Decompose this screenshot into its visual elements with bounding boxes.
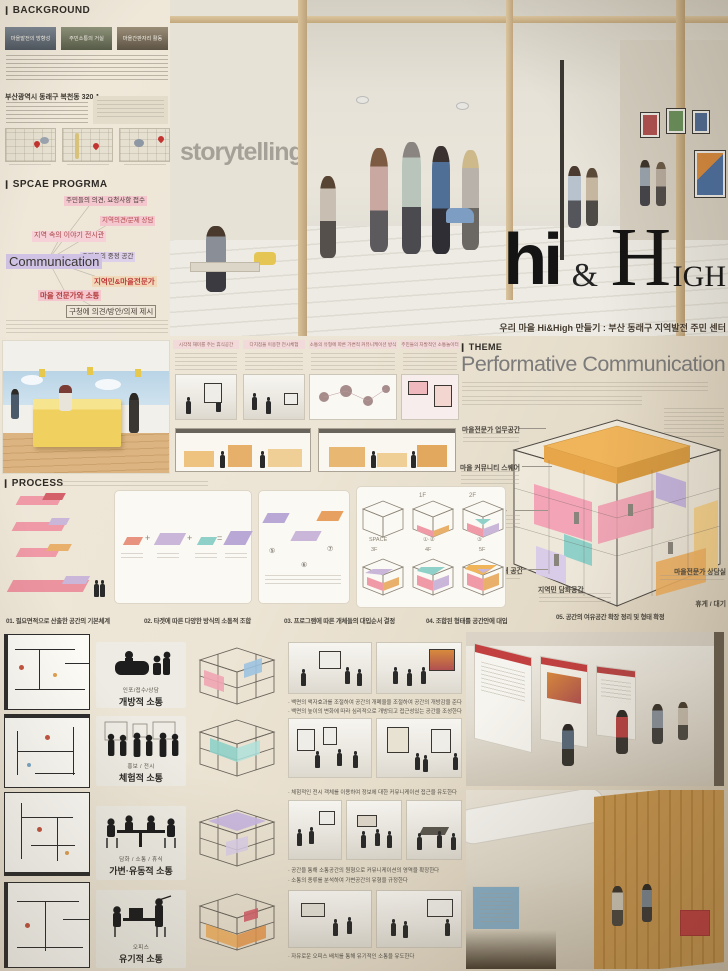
cube-grid-label: 3F <box>371 547 377 553</box>
person <box>568 166 581 228</box>
floor-plan-1 <box>4 634 90 710</box>
process-step-1: 01. 필요면적으로 산출한 공간의 기본체계 <box>6 616 110 625</box>
interior-rendering-photo <box>2 340 170 474</box>
model-figure <box>678 702 688 740</box>
cube-grid-label: 5F <box>479 547 485 553</box>
site-paragraph <box>6 102 88 124</box>
comm-label: 가변·유동적 소통 <box>96 864 186 877</box>
cube-grid-label: ①·② <box>423 537 435 543</box>
panel-header-3: 소통의 유형에 따른 가변적 커뮤니케이션 방식 <box>309 340 397 349</box>
type-cube-3 <box>196 808 278 870</box>
bullet: 백면의 높이의 변화에 따라 심리적으로 개방되고 접근성있는 공간을 조성한다 <box>288 707 462 715</box>
lounge-chair <box>446 208 474 223</box>
sketch-exhibit-2 <box>376 718 462 778</box>
panel-text <box>311 353 395 371</box>
mini-cube-filled <box>461 555 505 599</box>
comm-card-office: 오피스 유기적 소통 <box>96 890 186 968</box>
cube-label-7: 휴게 / 대기 <box>668 598 726 608</box>
space-program-footnote <box>6 320 168 336</box>
model-figure <box>612 886 623 926</box>
panel-sketch <box>175 374 237 420</box>
background-paragraph <box>6 55 168 82</box>
blue-poster <box>472 886 520 930</box>
process-step-4: 04. 조합된 형태를 공간안에 대입 <box>426 616 507 625</box>
op-plus: + <box>145 533 150 543</box>
mindmap-node: 주민들의 의견, 요청사항 접수 <box>64 196 147 206</box>
panel-text <box>403 353 457 371</box>
leader-line <box>520 428 546 429</box>
yellow-sign <box>87 367 93 375</box>
mini-cube <box>361 499 405 539</box>
process-step-2: 02. 타겟에 따른 다양한 방식의 소통적 조합 <box>144 616 251 625</box>
mini-cube-filled <box>411 555 455 599</box>
logo-hi: hi <box>503 220 559 300</box>
thumb-caption: 마을발전의 방향성 <box>5 35 56 42</box>
hero-wall-text: storytelling <box>180 138 303 167</box>
sketch-talk-2 <box>346 800 402 860</box>
process-panel-1 <box>4 492 108 610</box>
mindmap-center: Communication <box>6 254 102 269</box>
person-sitting <box>129 393 139 433</box>
project-subtitle: 우리 마을 Hi&High 만들기 : 부산 동래구 지역발전 주민 센터 <box>499 321 726 334</box>
yellow-info-desk <box>33 399 121 447</box>
red-cabinet <box>680 910 710 936</box>
comm-card-exhibit: 홍보 / 전시 체험적 소통 <box>96 716 186 786</box>
sketch-open-1 <box>288 642 372 694</box>
hero-left-wall <box>170 0 300 240</box>
wood-slat-wall <box>594 790 724 969</box>
mindmap-node: 구청에 의견/방안/의제 제시 <box>66 305 156 318</box>
artwork-frame-large <box>694 150 726 198</box>
panel-text <box>245 353 303 371</box>
cube-label-note <box>463 433 519 445</box>
comm-category: 오피스 <box>96 943 186 951</box>
type-cube-2 <box>196 718 278 780</box>
background-thumb-2: 주민소통의 거실 <box>61 27 112 50</box>
op-equals: = <box>217 533 222 543</box>
type-cube-1 <box>196 646 278 708</box>
site-maps <box>5 128 170 168</box>
step-num: ⑥ <box>301 561 307 569</box>
presentation-board: BACKGROUND 마을발전의 방향성 주민소통의 거실 마을간판자리 활동 … <box>0 0 728 971</box>
logo-ampersand: & <box>572 257 598 294</box>
bullet: 체험적인 전시 객체를 이용하여 정보에 대한 커뮤니케이션 접근을 유도한다 <box>288 788 457 796</box>
info-desk-silhouette <box>101 645 181 681</box>
process-panel-3: ⑤ ⑥ ⑦ <box>258 490 350 604</box>
map-1 <box>5 128 56 162</box>
sketch-exhibit-1 <box>288 718 372 778</box>
hero-right-wall <box>620 40 728 240</box>
photo-dark-edge <box>714 632 724 786</box>
comm-category: 담화 / 소통 / 휴식 <box>96 855 186 863</box>
theme-desc <box>462 382 708 391</box>
panel-header-2: 다지점을 이용한 전시체험 <box>243 340 305 349</box>
sketch-talk-3 <box>406 800 462 860</box>
cube-grid-label: ③ <box>477 537 482 543</box>
process-subtitle <box>58 481 208 486</box>
site-faded-photo <box>93 96 168 124</box>
shadow <box>466 930 556 969</box>
mindmap-node: 지역 속의 이야기 전시관 <box>32 231 106 242</box>
meeting-silhouette <box>99 810 183 850</box>
model-figure <box>562 724 574 766</box>
map-3 <box>119 128 170 162</box>
panel-header-1: 시각적 재미를 주는 휴식공간 <box>173 340 239 349</box>
yellow-sign <box>135 369 141 377</box>
artwork-frame <box>692 110 710 134</box>
person <box>11 389 19 419</box>
type-cube-4 <box>196 892 278 954</box>
person-seated <box>206 226 226 292</box>
model-figure <box>642 884 652 922</box>
step-num: ⑦ <box>327 545 333 553</box>
concept-panels: 시각적 재미를 주는 휴식공간 다지점을 이용한 전시체험 소통의 유형에 따른… <box>173 340 459 424</box>
comm-category: 홍보 / 전시 <box>96 762 186 770</box>
cube-label-note <box>539 593 611 605</box>
person <box>320 176 336 258</box>
background-thumb-3: 마을간판자리 활동 <box>117 27 168 50</box>
artwork-frame <box>640 112 660 138</box>
comm-label: 유기적 소통 <box>96 952 186 965</box>
bullet: 자유로운 오피스 배치를 통해 유기적인 소통을 유도한다 <box>288 952 414 960</box>
hero-rendering: storytelling hi & H I <box>170 0 728 336</box>
thumb-caption: 마을간판자리 활동 <box>117 35 168 42</box>
pendant-lamp <box>356 96 369 104</box>
person <box>586 168 598 226</box>
table <box>190 262 260 272</box>
thumb-caption: 주민소통의 거실 <box>61 35 112 42</box>
person <box>640 160 650 206</box>
floor-plan-2 <box>4 714 90 788</box>
step-num: ⑤ <box>269 547 275 555</box>
sketch-open-2 <box>376 642 462 694</box>
model-figure <box>652 704 663 744</box>
theme-desc2 <box>462 396 642 405</box>
cube-grid-label: 4F <box>425 547 431 553</box>
yellow-sign <box>39 369 45 377</box>
exhibition-silhouette <box>99 719 183 757</box>
white-duct <box>466 790 608 847</box>
mindmap-node: 마을 전문가와 소통 <box>38 290 101 301</box>
op-plus: + <box>187 533 192 543</box>
pendant-lamp <box>456 102 469 110</box>
bullet: 소통의 종류를 분석하여 가변공간의 유형을 규정한다 <box>288 876 408 884</box>
cube-label-note <box>461 471 519 487</box>
mini-cube <box>411 499 455 539</box>
process-title: PROCESS <box>5 478 64 489</box>
space-program-title: SPCAE PROGRMA <box>6 179 107 190</box>
logo-igh: IGH <box>673 260 726 293</box>
office-silhouette <box>99 894 183 938</box>
comm-card-talk: 담화 / 소통 / 휴식 가변·유동적 소통 <box>96 806 186 880</box>
display-panel <box>474 643 532 753</box>
mini-cube-filled <box>361 555 405 599</box>
person <box>432 146 450 254</box>
comm-card-info: 인포/접수/상담 개방적 소통 <box>96 642 186 708</box>
sketch-talk-1 <box>288 800 342 860</box>
section-drawing-1 <box>175 428 311 472</box>
comm-label: 개방적 소통 <box>96 695 186 708</box>
comm-label: 체험적 소통 <box>96 771 186 784</box>
wood-beam <box>170 16 728 23</box>
process-panel-4: 1F 2F SPACE ①·② ③ 3F 4F 5F <box>356 486 506 608</box>
background-title: BACKGROUND <box>6 5 90 16</box>
cube-label-note <box>660 575 724 583</box>
section-drawing-2 <box>318 428 456 472</box>
mindmap-node: 지역민&마을전문가 <box>92 276 157 287</box>
panel-sketch-network <box>309 374 397 420</box>
bullet: 공간을 통해 소통공간의 원형으로 커뮤니케이션의 영역을 확장한다 <box>288 866 439 874</box>
process-step-3: 03. 프로그램에 따른 개체들의 대입순서 결정 <box>284 616 395 625</box>
mindmap-node: 지역의견/문제 상담 <box>100 216 155 226</box>
artwork-frame <box>666 108 686 134</box>
map-2 <box>62 128 113 162</box>
floor-plan-4 <box>4 882 90 968</box>
cloud <box>95 379 121 390</box>
theme-label: THEME <box>462 342 502 352</box>
project-logo: hi & H IGH <box>456 224 726 320</box>
leader-line <box>520 569 548 570</box>
process-step-5: 05. 공간의 여유공간 확장 정리 및 형태 확정 <box>556 612 665 621</box>
bullet: 백면의 액자효과를 조절하여 공간의 개폐율을 조절하여 공간의 개방감을 준다 <box>288 698 462 706</box>
person-at-desk <box>59 385 72 411</box>
person <box>402 142 421 254</box>
background-thumb-1: 마을발전의 방향성 <box>5 27 56 50</box>
mini-cube <box>461 499 505 539</box>
site-title: 부산광역시 동래구 복천동 320-1 <box>5 92 100 102</box>
sketch-office-1 <box>288 890 372 948</box>
panel-sketch <box>243 374 305 420</box>
person <box>656 162 666 206</box>
model-photo-exhibition <box>466 632 724 786</box>
process-panel-2: + + = <box>114 490 252 604</box>
floor-plan-3 <box>4 792 90 876</box>
panel-sketch-plan <box>401 374 459 420</box>
model-figure <box>616 710 628 754</box>
panel-text <box>175 353 237 371</box>
leader-line <box>514 510 548 511</box>
cube-grid-label: SPACE <box>369 537 387 543</box>
sketch-office-2 <box>376 890 462 948</box>
leader-line <box>522 466 552 467</box>
model-photo-wood <box>466 790 724 969</box>
comm-category: 인포/접수/상담 <box>96 686 186 694</box>
person <box>370 148 388 252</box>
logo-h: H <box>611 211 669 304</box>
wood-post <box>298 0 307 336</box>
theme-headline: Performative Communication <box>461 352 725 377</box>
panel-header-4: 주민들의 자발적인 소통놀이터 <box>401 340 459 349</box>
